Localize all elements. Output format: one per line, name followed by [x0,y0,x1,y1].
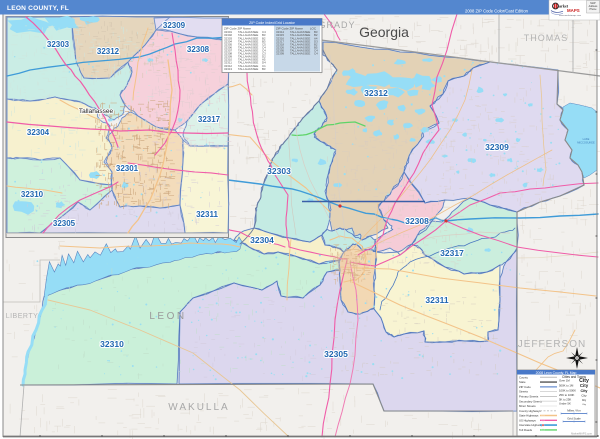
svg-text:Georgia: Georgia [359,24,409,40]
svg-text:MAPS: MAPS [567,8,580,13]
svg-text:Toll Roads: Toll Roads [519,428,533,432]
svg-text:MICCOSUKEE: MICCOSUKEE [577,141,595,145]
svg-text:32312: 32312 [364,88,388,98]
svg-text:Primary Streets: Primary Streets [519,395,539,399]
svg-text:32304: 32304 [27,128,50,137]
svg-text:JEFFERSON: JEFFERSON [518,339,586,350]
svg-text:32304: 32304 [250,235,274,245]
svg-text:LEON COUNTY, FL: LEON COUNTY, FL [7,5,69,12]
svg-text:32317: 32317 [198,115,221,124]
svg-text:Phone: Phone [590,8,598,11]
svg-text:C4: C4 [314,52,318,56]
svg-text:TALLAHASSEE: TALLAHASSEE [290,52,310,56]
svg-text:THOMAS: THOMAS [524,33,569,43]
svg-text:MarketMAPS.com: MarketMAPS.com [571,432,592,436]
svg-text:32305: 32305 [53,219,76,228]
svg-text:LIBERTY: LIBERTY [6,313,39,320]
svg-text:32301: 32301 [116,164,139,173]
svg-text:B3: B3 [262,67,266,71]
svg-text:ZIP Code Index/Grid Locator: ZIP Code Index/Grid Locator [249,21,295,25]
svg-text:Over 1M: Over 1M [559,379,570,383]
svg-text:LAKE: LAKE [583,137,590,141]
svg-text:City: City [580,383,589,388]
svg-text:32317: 32317 [440,248,464,258]
svg-text:32311: 32311 [425,295,448,305]
svg-text:City: City [581,394,587,398]
svg-text:32303: 32303 [47,40,70,49]
svg-text:32312: 32312 [97,47,120,56]
svg-text:32303: 32303 [267,166,291,176]
svg-text:Grid Scale: Grid Scale [567,417,581,421]
svg-text:2008 ZIP Code Color/Cast Editi: 2008 ZIP Code Color/Cast Edition [465,8,529,13]
svg-text:32308: 32308 [187,45,210,54]
svg-text:US Highways: US Highways [519,418,536,422]
svg-text:City: City [581,389,589,393]
svg-text:GRADY: GRADY [318,20,355,30]
svg-text:32309: 32309 [163,21,186,30]
svg-text:32310: 32310 [100,339,124,349]
svg-text:32305: 32305 [324,349,348,359]
svg-text:TALLAHASSEE: TALLAHASSEE [238,67,258,71]
svg-text:Miles / Km: Miles / Km [567,409,581,413]
svg-text:WAKULLA: WAKULLA [168,402,229,413]
svg-text:Secondary Streets: Secondary Streets [519,399,543,403]
svg-text:32309: 32309 [485,142,509,152]
svg-text:Minor Streets: Minor Streets [519,404,536,408]
svg-text:Tallahassee: Tallahassee [79,108,114,115]
svg-text:County Highways: County Highways [519,409,541,413]
svg-text:32313: 32313 [224,67,232,71]
svg-text:2008 Leon County, FL Map: 2008 Leon County, FL Map [536,371,577,375]
svg-text:County: County [519,375,528,379]
svg-text:32311: 32311 [196,210,218,219]
svg-text:32308: 32308 [405,216,429,226]
svg-text:www.marketmaps.com: www.marketmaps.com [559,14,581,17]
svg-text:Streets: Streets [519,390,528,394]
svg-text:ZIP Code: ZIP Code [519,385,531,389]
svg-text:State Highways: State Highways [519,414,539,418]
svg-text:State: State [519,380,526,384]
svg-text:32310: 32310 [21,190,44,199]
svg-text:Under 5K: Under 5K [559,402,571,406]
svg-text:32399: 32399 [276,52,284,56]
svg-text:City: City [582,399,587,402]
svg-text:500K to 1M: 500K to 1M [559,384,574,388]
svg-text:LEON: LEON [149,311,186,322]
svg-text:100K to 500K: 100K to 500K [559,388,576,392]
